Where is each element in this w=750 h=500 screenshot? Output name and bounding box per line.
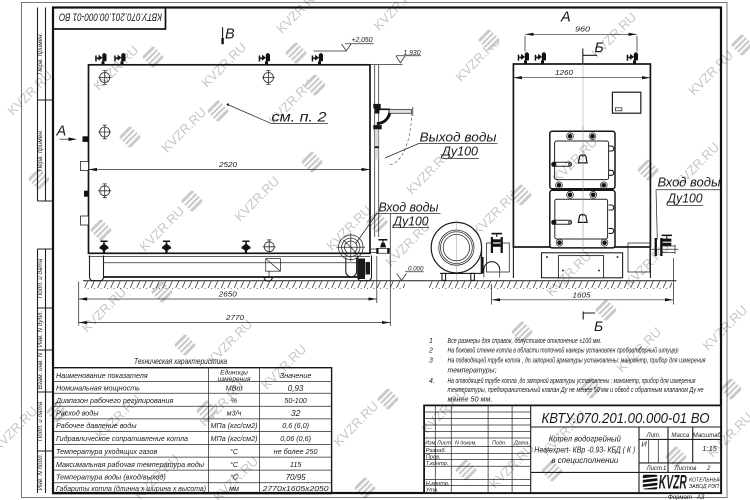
svg-text:Номинальная мощность: Номинальная мощность [56, 384, 140, 393]
svg-text:2520: 2520 [218, 160, 238, 169]
svg-text:+2,050: +2,050 [352, 35, 373, 44]
svg-text:1260: 1260 [555, 68, 574, 77]
svg-text:температуры;: температуры; [448, 368, 497, 375]
svg-text:2650: 2650 [218, 290, 238, 299]
svg-text:ЗАВОД РЭП: ЗАВОД РЭП [689, 484, 719, 490]
svg-text:температуры, предохранительный: температуры, предохранительный клапан Ду… [448, 386, 704, 394]
svg-text:0,93: 0,93 [288, 384, 304, 393]
svg-text:Перв. примен.: Перв. примен. [37, 130, 44, 172]
svg-text:Подп. и дата: Подп. и дата [36, 401, 44, 441]
svg-text:70/95: 70/95 [286, 473, 307, 482]
svg-text:115: 115 [290, 460, 302, 469]
svg-text:На подводящей трубе котла ,: На подводящей трубе котла , до запорной … [448, 357, 706, 365]
svg-text:На отводящей трубе котла ,до з: На отводящей трубе котла ,до запорной ар… [448, 377, 696, 385]
svg-text:3: 3 [429, 358, 433, 365]
svg-text:Н.контр.: Н.контр. [426, 481, 450, 487]
svg-text:4.: 4. [429, 378, 435, 385]
svg-text:Лит.: Лит. [645, 433, 660, 439]
svg-text:KVZR: KVZR [659, 473, 687, 494]
svg-text:0.000: 0.000 [408, 265, 424, 272]
svg-text:в специсполнении: в специсполнении [551, 456, 619, 465]
svg-text:1605: 1605 [573, 290, 592, 299]
svg-text:Лист: Лист [436, 441, 451, 447]
svg-text:А: А [560, 9, 571, 25]
svg-text:Инв. N подл.: Инв. N подл. [36, 454, 44, 491]
svg-text:Формат: Формат [668, 495, 692, 500]
svg-text:0,06 (0,6): 0,06 (0,6) [280, 434, 311, 443]
svg-text:Т.контр.: Т.контр. [426, 461, 449, 467]
svg-text:А: А [56, 124, 67, 140]
svg-text:КОТЕЛЬНЫЙ: КОТЕЛЬНЫЙ [689, 476, 722, 484]
svg-text:1: 1 [429, 338, 433, 345]
svg-text:Гидравлическое сопративление к: Гидравлическое сопративление котла [56, 434, 188, 443]
svg-text:А3: А3 [696, 495, 705, 500]
svg-text:не более 250: не более 250 [274, 447, 318, 456]
svg-text:1: 1 [663, 466, 666, 472]
svg-text:0,6 (6,0): 0,6 (6,0) [282, 421, 309, 430]
svg-text:В: В [225, 27, 235, 43]
svg-text:м3/ч: м3/ч [227, 409, 242, 418]
svg-text:50-100: 50-100 [284, 396, 306, 405]
svg-text:Изм.: Изм. [425, 441, 437, 447]
svg-text:°С: °С [230, 447, 239, 456]
svg-text:Вход воды: Вход воды [379, 201, 439, 215]
svg-text:2770х1605х2050: 2770х1605х2050 [261, 484, 328, 493]
svg-text:N докум.: N докум. [455, 441, 477, 447]
svg-text:2: 2 [428, 348, 433, 355]
svg-text:Лист: Лист [646, 466, 662, 472]
svg-text:Подп.: Подп. [492, 441, 506, 447]
svg-text:Наименование показателя: Наименование показателя [56, 371, 148, 380]
svg-text:КВТУ.070.201.00.000-01 ВО: КВТУ.070.201.00.000-01 ВО [59, 11, 162, 23]
svg-text:Подп. и дата: Подп. и дата [36, 258, 44, 298]
svg-text:Температура уходящих газов: Температура уходящих газов [56, 447, 158, 456]
svg-text:Пров.: Пров. [426, 455, 441, 461]
svg-text:Максимальная рабочая температу: Максимальная рабочая температура воды [56, 460, 205, 469]
svg-text:Масса: Масса [671, 433, 689, 439]
svg-text:Диапазон рабочего регулировани: Диапазон рабочего регулирования [55, 396, 174, 405]
svg-text:МПа (кгс/см2): МПа (кгс/см2) [211, 434, 258, 443]
svg-text:960: 960 [575, 25, 591, 34]
svg-text:МПа (кгс/см2): МПа (кгс/см2) [211, 421, 258, 430]
svg-text:И: И [641, 440, 647, 449]
svg-text:Инв. N дубл.: Инв. N дубл. [36, 311, 44, 347]
svg-text:2: 2 [706, 466, 711, 472]
svg-text:Б: Б [594, 318, 603, 334]
svg-text:32: 32 [291, 408, 301, 418]
svg-text:Ду100: Ду100 [666, 191, 703, 205]
svg-text:Разраб.: Разраб. [426, 448, 446, 454]
svg-text:Утв.: Утв. [425, 487, 439, 493]
svg-text:Выход воды: Выход воды [420, 130, 497, 144]
svg-text:Взам. инв. N: Взам. инв. N [37, 352, 44, 389]
